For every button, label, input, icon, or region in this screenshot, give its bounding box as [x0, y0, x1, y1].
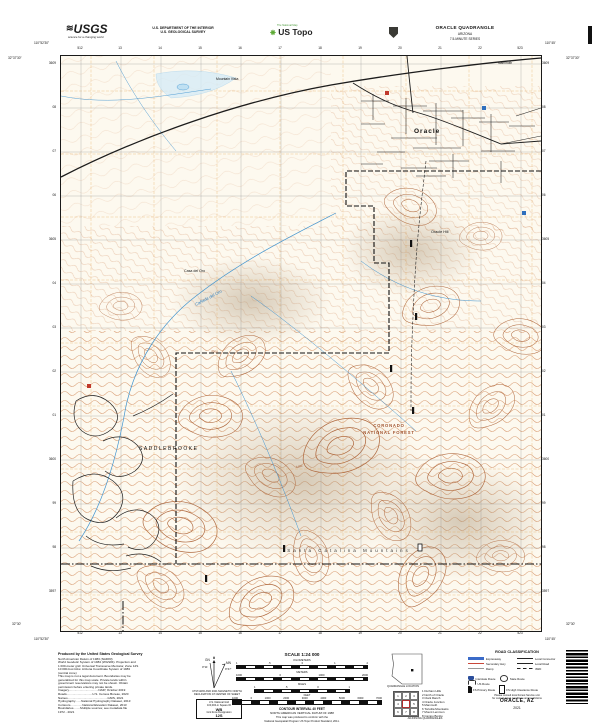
- label-forest-2: NATIONAL FOREST: [363, 430, 414, 435]
- fs-high-clearance-label: FS High Clearance Route: [506, 688, 538, 692]
- grid-label: 18: [312, 46, 328, 50]
- tick: 2000: [283, 697, 289, 700]
- local-road-label: Local Road: [535, 662, 549, 666]
- tick: .5: [268, 662, 270, 665]
- label-casa-del-oro: Casa del Oro: [184, 269, 205, 273]
- label-range: Santa Catalina Mountains: [287, 548, 411, 553]
- quadrangle-location-caption: QUADRANGLE LOCATION: [377, 685, 429, 688]
- label-oracle-hill: Oracle Hill: [431, 230, 449, 234]
- quad-series: 7.5-MINUTE SERIES: [405, 37, 525, 41]
- imprint-title: ORACLE, AZ: [468, 698, 566, 704]
- adjoining-quad-cell: [402, 700, 410, 708]
- ustopo-logo: ❋ US Topo: [270, 27, 313, 37]
- tick: 0: [280, 674, 282, 677]
- tick: 0: [317, 686, 319, 689]
- fs-primary-icon: [468, 686, 472, 693]
- fs-primary-label: FS Primary Route: [473, 688, 495, 692]
- expressway-label: Expressway: [486, 657, 501, 661]
- grid-label: 3609: [34, 61, 56, 65]
- scalebar-feet: FEET 100001000200030004000500060007000: [232, 694, 382, 704]
- secondary-label: Secondary Hwy: [486, 662, 506, 666]
- local-road-line-sample: [517, 663, 533, 664]
- grid-label: 07: [542, 149, 564, 153]
- adjoining-quad-cell: 5: [410, 700, 418, 708]
- label-mammoth: Mammoth: [498, 61, 512, 65]
- grid-label: 98: [542, 545, 564, 549]
- local-connector-line-sample: [517, 658, 533, 660]
- grid-labels-right: 3609080706360504030201360099983597: [542, 55, 566, 630]
- scalebar: [254, 689, 350, 693]
- adjoining-quad-cell: 7: [402, 708, 410, 716]
- road-class-col-right: Local Connector Local Road 4WD: [517, 656, 566, 671]
- grid-label: 06: [34, 193, 56, 197]
- scalebar: [232, 700, 382, 704]
- expressway-line-sample: [468, 657, 484, 659]
- grid-label: 08: [34, 105, 56, 109]
- barcode: [566, 650, 588, 704]
- tick: 5000: [339, 697, 345, 700]
- grid-label: 3605: [34, 237, 56, 241]
- map-canvas: Oracle SADDLEBROOKE CORONADO NATIONAL FO…: [60, 55, 542, 632]
- state-locator-map: [385, 653, 425, 685]
- fs-high-clearance-icon: [499, 685, 505, 694]
- scale-block: SCALE 1:24 000 KILOMETERS 1.5012 METERS …: [232, 652, 372, 723]
- produced-by-title: Produced by the United States Geological…: [58, 652, 198, 656]
- grid-label: 08: [542, 105, 564, 109]
- usgs-tagline: science for a changing world: [68, 35, 103, 39]
- gn-label: GN: [205, 658, 210, 662]
- topo-map-sheet: ≋USGS science for a changing world U.S. …: [0, 0, 600, 725]
- 4wd-line-sample: [517, 668, 533, 669]
- grid-label: 01: [542, 413, 564, 417]
- ustopo-text: US Topo: [278, 27, 312, 37]
- ramp-label: Ramp: [486, 667, 493, 671]
- corner-lat-br: 32°30': [566, 622, 575, 626]
- sheet-imprint: ORACLE, AZ 2021: [468, 698, 566, 710]
- imprint-year: 2021: [468, 706, 566, 710]
- grid-labels-left: 3609080706360504030201360099983597: [34, 55, 58, 630]
- true-north-star-icon: [213, 656, 216, 663]
- grid-label: 04: [34, 281, 56, 285]
- secondary-line-sample: [468, 663, 484, 665]
- scalebar: [236, 665, 368, 669]
- tick: 2: [367, 662, 369, 665]
- corner-lon-bl: 110°52'30": [34, 637, 49, 641]
- tick: 1: [254, 686, 256, 689]
- gn-value: 0°11': [202, 665, 209, 669]
- forest-service-shield-icon: [389, 27, 398, 38]
- relief-shading: [341, 206, 481, 296]
- corner-lat-tr: 32°37'30": [566, 56, 580, 60]
- road-class-col-left: Expressway Secondary Hwy Ramp: [468, 656, 517, 671]
- tick: 4000: [320, 697, 326, 700]
- grid-label: 16: [232, 46, 248, 50]
- grid-label: 07: [34, 149, 56, 153]
- adjoining-quad-cell: 8: [410, 708, 418, 716]
- state-route-label: State Route: [510, 677, 525, 681]
- grid-label: 15: [192, 46, 208, 50]
- grid-label: 14: [152, 46, 168, 50]
- scalebar-miles: MILES 1.501: [254, 683, 350, 693]
- grid-label: 03: [542, 325, 564, 329]
- tick: 1000: [236, 674, 242, 677]
- hollow-structure-marker: [418, 544, 422, 551]
- adjoining-quad-cell: 1: [394, 692, 402, 700]
- grid-label: 98: [34, 545, 56, 549]
- usgs-logo: ≋USGS: [66, 22, 108, 36]
- tick: 1000: [232, 697, 238, 700]
- grid-label: 3597: [34, 589, 56, 593]
- produced-by-line: 1972 - 2021: [58, 711, 198, 715]
- usgs-waves-icon: ≋: [66, 23, 74, 33]
- vertical-datum-note: NORTH AMERICAN VERTICAL DATUM OF 1988: [232, 711, 372, 715]
- quad-location-dot: [411, 669, 413, 671]
- grid-label: 03: [34, 325, 56, 329]
- corner-lat-tl: 32°37'30": [8, 56, 22, 60]
- grid-label: 99: [34, 501, 56, 505]
- tick: 2000: [362, 674, 368, 677]
- corner-lat-bl: 32°30': [12, 622, 21, 626]
- produced-by-lines: North American Datum of 1983 (NAD83)Worl…: [58, 658, 198, 715]
- adjoining-caption: ADJOINING QUADRANGLES: [380, 717, 470, 720]
- local-connector-label: Local Connector: [535, 657, 555, 661]
- grid-label: 523: [512, 46, 528, 50]
- grid-label: 99: [542, 501, 564, 505]
- adjoining-quad-cell: 2: [402, 692, 410, 700]
- ustopo-leaf-icon: ❋: [270, 30, 276, 37]
- scale-title: SCALE 1:24 000: [232, 652, 372, 657]
- tick: 0: [251, 697, 253, 700]
- standard-note: This map was produced to conform with th…: [232, 716, 372, 722]
- ramp-line-sample: [468, 668, 484, 669]
- interstate-label: Interstate Route: [476, 677, 496, 681]
- grid-label: 22: [472, 46, 488, 50]
- grid-label: 21: [432, 46, 448, 50]
- tick: .5: [285, 686, 287, 689]
- grid-label: 02: [34, 369, 56, 373]
- grid-label: 02: [542, 369, 564, 373]
- mn-value: 9°47': [225, 667, 232, 671]
- grid-label: 3605: [542, 237, 564, 241]
- label-saddlebrooke: SADDLEBROOKE: [139, 446, 198, 452]
- corner-lon-tr: 110°45': [545, 41, 556, 45]
- grid-label: 3597: [542, 589, 564, 593]
- department-heading: U.S. DEPARTMENT OF THE INTERIOR U.S. GEO…: [118, 26, 248, 35]
- adjoining-quad-grid: 12345678: [393, 691, 419, 717]
- scalebar-kilometers: KILOMETERS 1.5012: [236, 659, 368, 669]
- tick: 1000: [265, 697, 271, 700]
- grid-labels-top: 51213141516171819202122523: [60, 46, 540, 54]
- grid-label: 3600: [542, 457, 564, 461]
- grid-label: 19: [352, 46, 368, 50]
- adjoining-quad-cell: 4: [394, 700, 402, 708]
- adjoining-quad-names: 1 Durham Hills2 North of Oracle3 Clark R…: [422, 690, 470, 718]
- us-route-label: US Route: [478, 682, 490, 686]
- tick: 0: [302, 662, 304, 665]
- label-oracle-town: Oracle: [414, 128, 440, 135]
- label-forest-1: CORONADO: [373, 423, 404, 428]
- grid-label: 512: [72, 46, 88, 50]
- tick: 1: [236, 662, 238, 665]
- grid-label: 3600: [34, 457, 56, 461]
- tick: 7000: [376, 697, 382, 700]
- grid-label: 01: [34, 413, 56, 417]
- adjoining-quad-cell: 3: [410, 692, 418, 700]
- grid-label: 04: [542, 281, 564, 285]
- tick: 1: [349, 686, 351, 689]
- corner-lon-tl: 110°52'30": [34, 41, 49, 45]
- pond: [177, 84, 189, 90]
- corner-lon-br: 110°45': [545, 637, 556, 641]
- grid-label: 3609: [542, 61, 564, 65]
- quadrangle-title-block: ORACLE QUADRANGLE ARIZONA 7.5-MINUTE SER…: [405, 25, 525, 41]
- label-mountain-vista: Mountain Vista: [216, 77, 238, 81]
- grid-label: 06: [542, 193, 564, 197]
- registration-bar: [588, 26, 592, 44]
- adjoining-quad-cell: 6: [394, 708, 402, 716]
- scalebar: [236, 677, 368, 681]
- standard-note-2: National Geospatial Program US Topo Prod…: [232, 720, 372, 723]
- mn-label: MN: [226, 661, 232, 665]
- 4wd-label: 4WD: [535, 667, 541, 671]
- quad-state: ARIZONA: [405, 32, 525, 36]
- usgs-logo-text: USGS: [74, 22, 108, 36]
- grid-label: 17: [272, 46, 288, 50]
- grid-labels-bottom: 51213141516171819202122523: [60, 631, 540, 639]
- tick: 6000: [357, 697, 363, 700]
- grid-label: 20: [392, 46, 408, 50]
- road-classification-legend: ROAD CLASSIFICATION Expressway Secondary…: [468, 650, 566, 700]
- dept-line2: U.S. GEOLOGICAL SURVEY: [118, 30, 248, 34]
- quad-title: ORACLE QUADRANGLE: [405, 25, 525, 30]
- road-classification-title: ROAD CLASSIFICATION: [468, 650, 566, 654]
- scalebar-meters: METERS 1000010002000: [236, 671, 368, 681]
- produced-by-block: Produced by the United States Geological…: [58, 652, 198, 714]
- tick: 3000: [302, 697, 308, 700]
- grid-label: 13: [112, 46, 128, 50]
- tick: 1: [334, 662, 336, 665]
- tick: 1000: [319, 674, 325, 677]
